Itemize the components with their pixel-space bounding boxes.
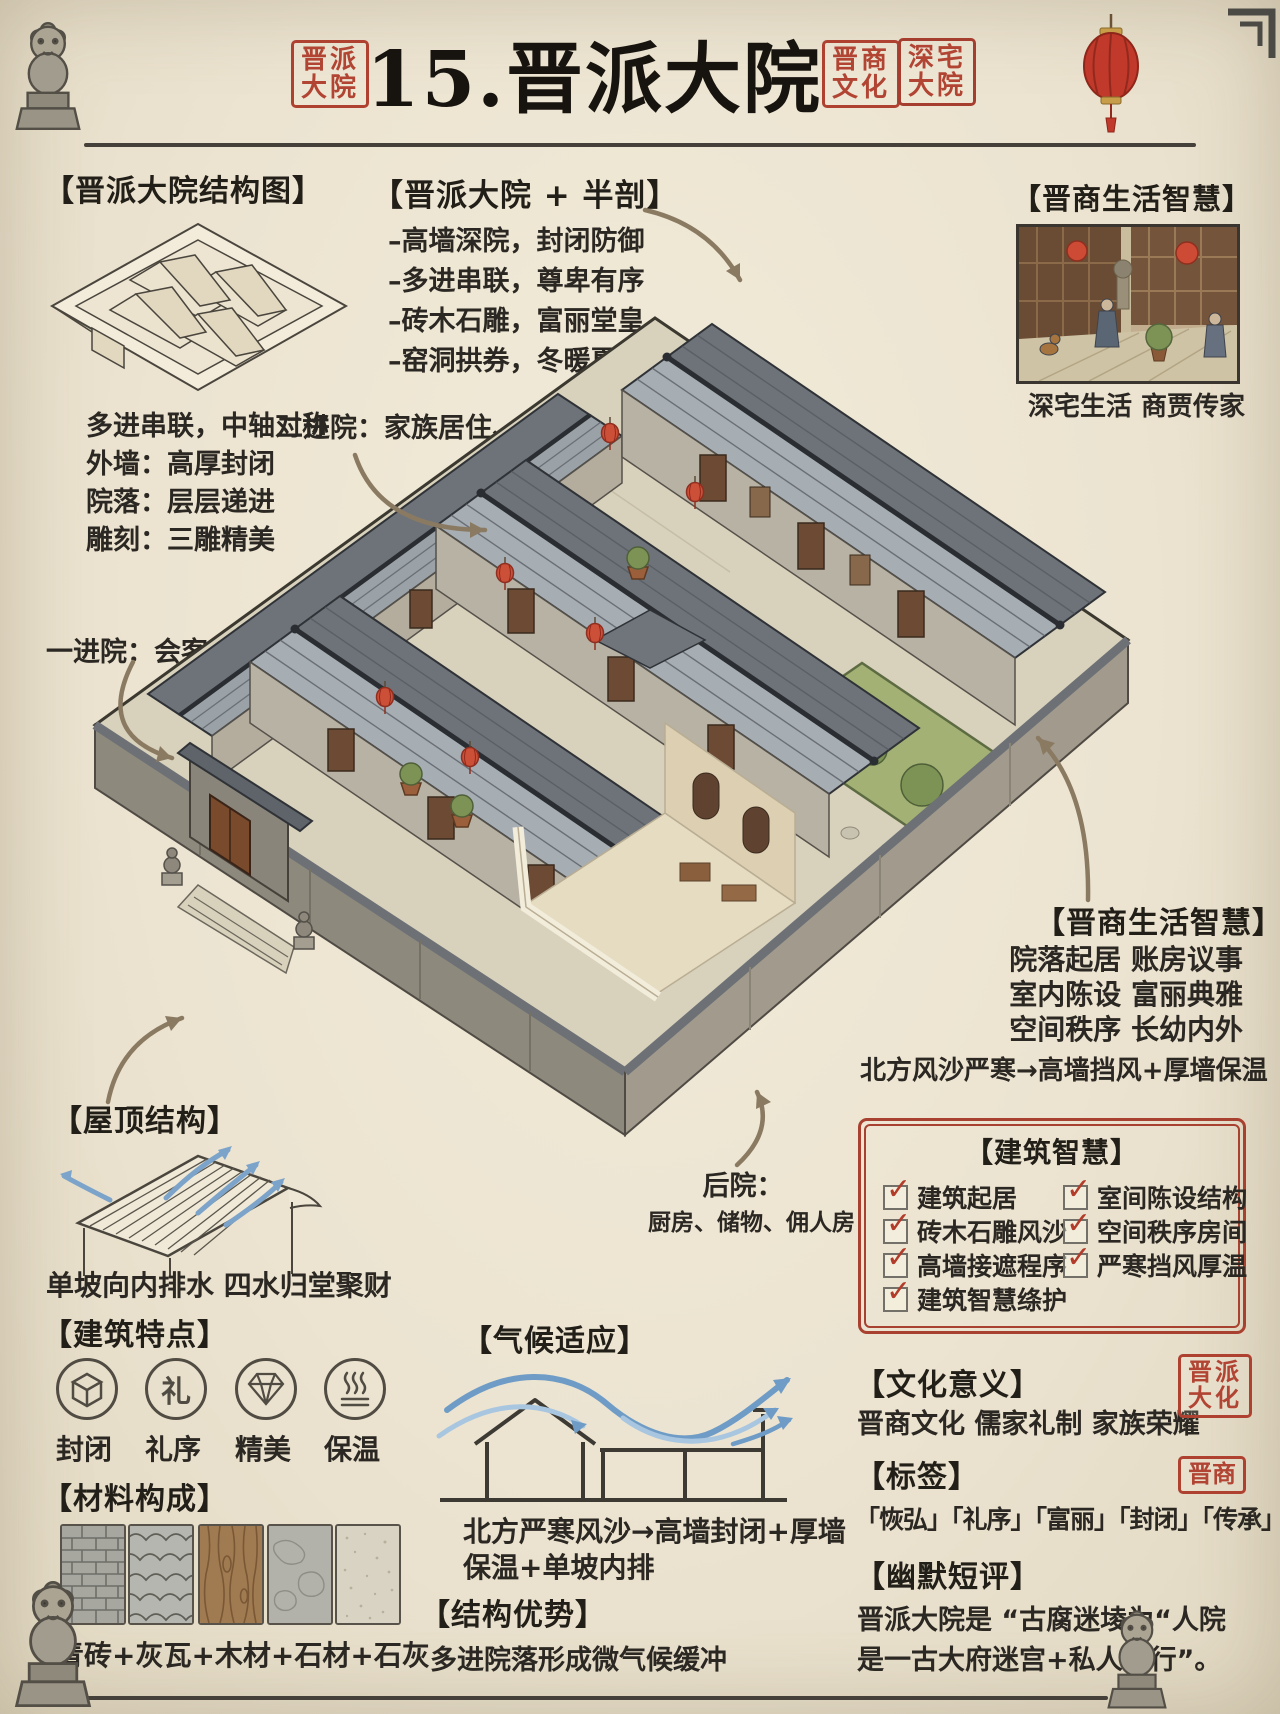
li-order-icon: 礼 bbox=[145, 1358, 207, 1420]
advantage-text: 多进院落形成微气候缓冲 bbox=[430, 1638, 727, 1677]
check-icon: ✓ bbox=[886, 1209, 911, 1239]
culture-heading: 【文化意义】 bbox=[855, 1360, 1041, 1404]
stone-lion-icon bbox=[1096, 1594, 1178, 1714]
roof-caption: 单坡向内排水 四水归堂聚财 bbox=[46, 1264, 392, 1304]
back-court-sub: 厨房、储物、佣人房 bbox=[648, 1203, 838, 1237]
checkbox-icon: ✓ bbox=[1063, 1253, 1088, 1278]
feature-label: 精美 bbox=[235, 1428, 291, 1468]
materials-caption: 青砖+灰瓦+木材+石材+石灰 bbox=[56, 1634, 430, 1674]
check-icon: ✓ bbox=[886, 1277, 911, 1307]
roof-sketch bbox=[48, 1128, 348, 1278]
page-title: 15.晋派大院 bbox=[366, 18, 822, 129]
culture-text: 晋商文化 儒家礼制 家族荣耀 bbox=[857, 1402, 1200, 1441]
feature-label: 封闭 bbox=[56, 1428, 112, 1468]
wisdom-item: 高墙接遮程序 bbox=[917, 1247, 1067, 1283]
check-icon: ✓ bbox=[1066, 1209, 1091, 1239]
seal-jinshang: 晋商 bbox=[1178, 1456, 1246, 1494]
seal-shenzhai-dayuan: 深宅大院 bbox=[898, 38, 976, 106]
wisdom-item: 空间秩序房间 bbox=[1097, 1213, 1247, 1249]
check-icon: ✓ bbox=[886, 1243, 911, 1273]
checkbox-icon: ✓ bbox=[883, 1287, 908, 1312]
life-right-line4: 北方风沙严寒→高墙挡风+厚墙保温 bbox=[860, 1050, 1244, 1087]
wisdom-item: 室间陈设结构 bbox=[1097, 1179, 1247, 1215]
feature-label: 保温 bbox=[324, 1428, 380, 1468]
tags-text: 「恢弘」「礼序」「富丽」「封闭」「传承」 bbox=[855, 1500, 1280, 1536]
materials-heading: 【材料构成】 bbox=[42, 1474, 228, 1518]
wisdom-item: 严寒挡风厚温 bbox=[1097, 1247, 1247, 1283]
life-right-line: 空间秩序 长幼内外 bbox=[875, 1012, 1243, 1047]
stone-lion-icon bbox=[8, 4, 88, 136]
wisdom-item: 建筑智慧绦护 bbox=[917, 1281, 1067, 1317]
check-icon: ✓ bbox=[1066, 1175, 1091, 1205]
diamond-icon bbox=[235, 1358, 297, 1420]
footer-divider bbox=[78, 1696, 1108, 1700]
wisdom-heading: 【建筑智慧】 bbox=[861, 1131, 1243, 1171]
feature-label: 礼序 bbox=[145, 1428, 201, 1468]
insulation-heat-icon bbox=[324, 1358, 386, 1420]
wood-swatch bbox=[198, 1524, 264, 1625]
life-right-lines: 院落起居 账房议事 室内陈设 富丽典雅 空间秩序 长幼内外 bbox=[875, 942, 1243, 1047]
check-icon: ✓ bbox=[1066, 1243, 1091, 1273]
stone-swatch bbox=[267, 1524, 333, 1625]
seal-jinpai-dahua: 晋派大化 bbox=[1178, 1354, 1252, 1418]
seal-jinpai-dayuan: 晋派大院 bbox=[291, 40, 369, 108]
wisdom-item: 砖木石雕风沙 bbox=[917, 1213, 1067, 1249]
humor-heading: 【幽默短评】 bbox=[855, 1552, 1041, 1596]
tile-swatch bbox=[128, 1524, 194, 1625]
wisdom-box: 【建筑智慧】 ✓建筑起居 ✓砖木石雕风沙 ✓高墙接遮程序 ✓建筑智慧绦护 ✓室间… bbox=[858, 1118, 1246, 1334]
seal-jinshang-wenhua: 晋商文化 bbox=[822, 40, 900, 108]
climate-diagram bbox=[435, 1352, 795, 1512]
advantage-heading: 【结构优势】 bbox=[420, 1590, 606, 1634]
life-right-line: 室内陈设 富丽典雅 bbox=[875, 977, 1243, 1012]
red-lantern-icon bbox=[1078, 14, 1144, 134]
life-right-line: 院落起居 账房议事 bbox=[875, 942, 1243, 977]
stone-lion-icon bbox=[0, 1560, 106, 1714]
header-divider bbox=[84, 143, 1196, 147]
poster-canvas: 晋派大院 15.晋派大院 晋商文化 深宅大院 【晋派大院结构图】 bbox=[0, 0, 1280, 1714]
corner-ornament-icon bbox=[1222, 6, 1276, 64]
climate-line2: 保温+单坡内排 bbox=[463, 1546, 654, 1586]
life-right-heading: 【晋商生活智慧】 bbox=[1035, 898, 1280, 942]
lime-swatch bbox=[335, 1524, 401, 1625]
features-heading: 【建筑特点】 bbox=[42, 1310, 228, 1354]
wisdom-item: 建筑起居 bbox=[917, 1179, 1017, 1215]
climate-line1: 北方严寒风沙→高墙封闭+厚墙 bbox=[463, 1510, 846, 1550]
enclosed-cube-icon bbox=[56, 1358, 118, 1420]
tags-heading: 【标签】 bbox=[855, 1452, 979, 1496]
check-icon: ✓ bbox=[886, 1175, 911, 1205]
